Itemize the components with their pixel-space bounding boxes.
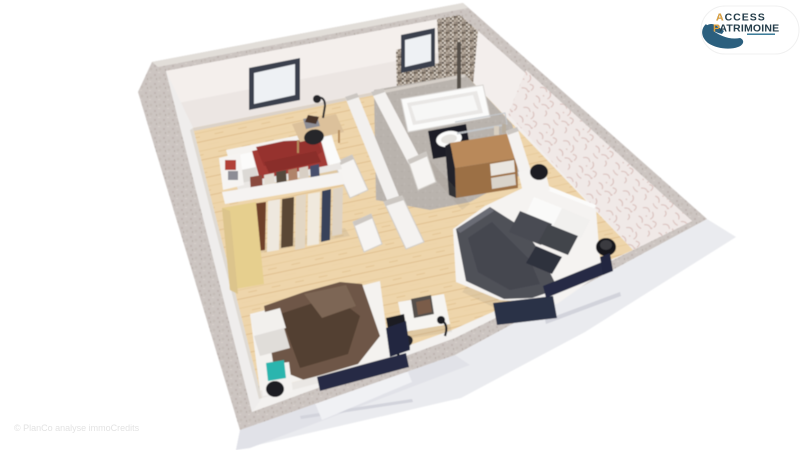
svg-text:PATRIMOINE: PATRIMOINE [713,23,779,35]
svg-text:© PlanCo analyse immoCredits: © PlanCo analyse immoCredits [14,423,140,433]
svg-text:P: P [713,23,720,35]
